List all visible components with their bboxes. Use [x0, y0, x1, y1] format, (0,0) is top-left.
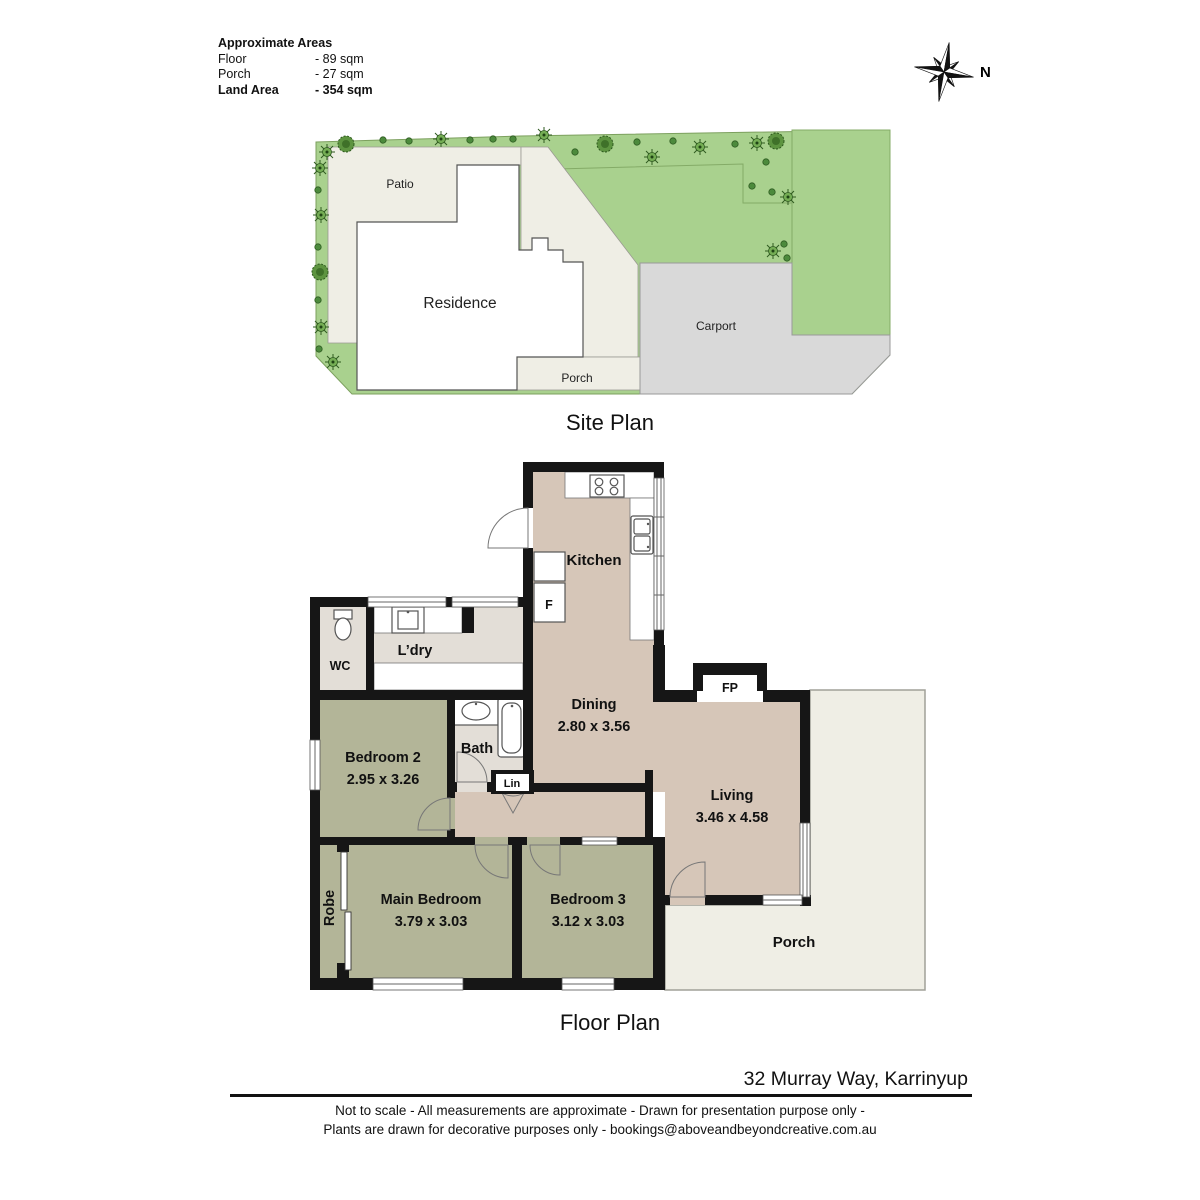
laundry-trough-icon: [392, 607, 424, 633]
laundry-label: L’dry: [398, 643, 433, 659]
areas-row-land: Land Area - 354 sqm: [218, 83, 373, 99]
property-address: 32 Murray Way, Karrinyup: [744, 1068, 968, 1091]
areas-value: - 27 sqm: [315, 67, 364, 83]
dining-dims: 2.80 x 3.56: [558, 719, 631, 735]
areas-row-porch: Porch - 27 sqm: [218, 67, 373, 83]
linen-label: Lin: [504, 778, 521, 790]
areas-label: Land Area: [218, 83, 315, 99]
main-bedroom-dims: 3.79 x 3.03: [395, 914, 468, 930]
areas-title: Approximate Areas: [218, 36, 373, 52]
floor-plan: Kitchen F WC L’dry Dining 2.80 x 3.56 FP…: [300, 455, 935, 1000]
bedroom3-label: Bedroom 3: [550, 892, 626, 908]
site-porch-label: Porch: [561, 371, 592, 385]
kitchen-label: Kitchen: [566, 552, 621, 569]
lawn-right-block: [792, 130, 890, 335]
kitchen-back-door: [488, 508, 528, 548]
site-plan-title: Site Plan: [10, 410, 1200, 436]
footer-divider: [230, 1094, 972, 1097]
dining-label: Dining: [571, 697, 616, 713]
residence-label: Residence: [423, 295, 496, 312]
wc-label: WC: [330, 659, 351, 673]
kitchen-sink-icon: [631, 516, 653, 554]
toilet-icon: [334, 610, 352, 640]
areas-value: - 354 sqm: [315, 83, 373, 99]
floorplan-page: Approximate Areas Floor - 89 sqm Porch -…: [0, 0, 1200, 1200]
living-dims: 3.46 x 4.58: [696, 810, 769, 826]
fireplace-label: FP: [722, 681, 738, 695]
living-label: Living: [711, 788, 754, 804]
floor-plan-title: Floor Plan: [10, 1010, 1200, 1036]
hall-living-opening: [653, 792, 665, 837]
basin-icon: [454, 697, 498, 725]
compass-north-label: N: [980, 64, 991, 81]
areas-row-floor: Floor - 89 sqm: [218, 52, 373, 68]
bedroom2-dims: 2.95 x 3.26: [347, 772, 420, 788]
window: [763, 895, 802, 905]
window: [654, 478, 664, 630]
hallway: [453, 792, 653, 837]
bath-label: Bath: [461, 741, 493, 757]
stove-icon: [590, 475, 624, 497]
window: [800, 823, 810, 897]
disclaimer-line-2: Plants are drawn for decorative purposes…: [0, 1122, 1200, 1137]
main-bedroom-label: Main Bedroom: [381, 892, 482, 908]
carport-label: Carport: [696, 319, 737, 333]
site-plan: Patio Residence Porch Carport: [305, 122, 900, 402]
window: [310, 740, 320, 790]
kitchen-pantry: [534, 552, 565, 581]
window: [452, 597, 518, 607]
window: [368, 597, 446, 607]
window-sliding: [582, 837, 617, 845]
areas-label: Porch: [218, 67, 315, 83]
bathtub-icon: [498, 698, 525, 757]
laundry-bench-lower: [374, 663, 523, 690]
fridge-label: F: [545, 598, 553, 612]
approximate-areas-panel: Approximate Areas Floor - 89 sqm Porch -…: [218, 36, 373, 98]
porch-label: Porch: [773, 934, 816, 951]
bedroom3-dims: 3.12 x 3.03: [552, 914, 625, 930]
patio-label: Patio: [386, 177, 414, 191]
bedroom2-label: Bedroom 2: [345, 750, 421, 766]
window: [373, 978, 463, 990]
robe-label: Robe: [322, 890, 338, 926]
areas-value: - 89 sqm: [315, 52, 364, 68]
compass-rose-icon: N: [900, 28, 1010, 118]
window: [562, 978, 614, 990]
areas-label: Floor: [218, 52, 315, 68]
disclaimer-line-1: Not to scale - All measurements are appr…: [0, 1103, 1200, 1118]
